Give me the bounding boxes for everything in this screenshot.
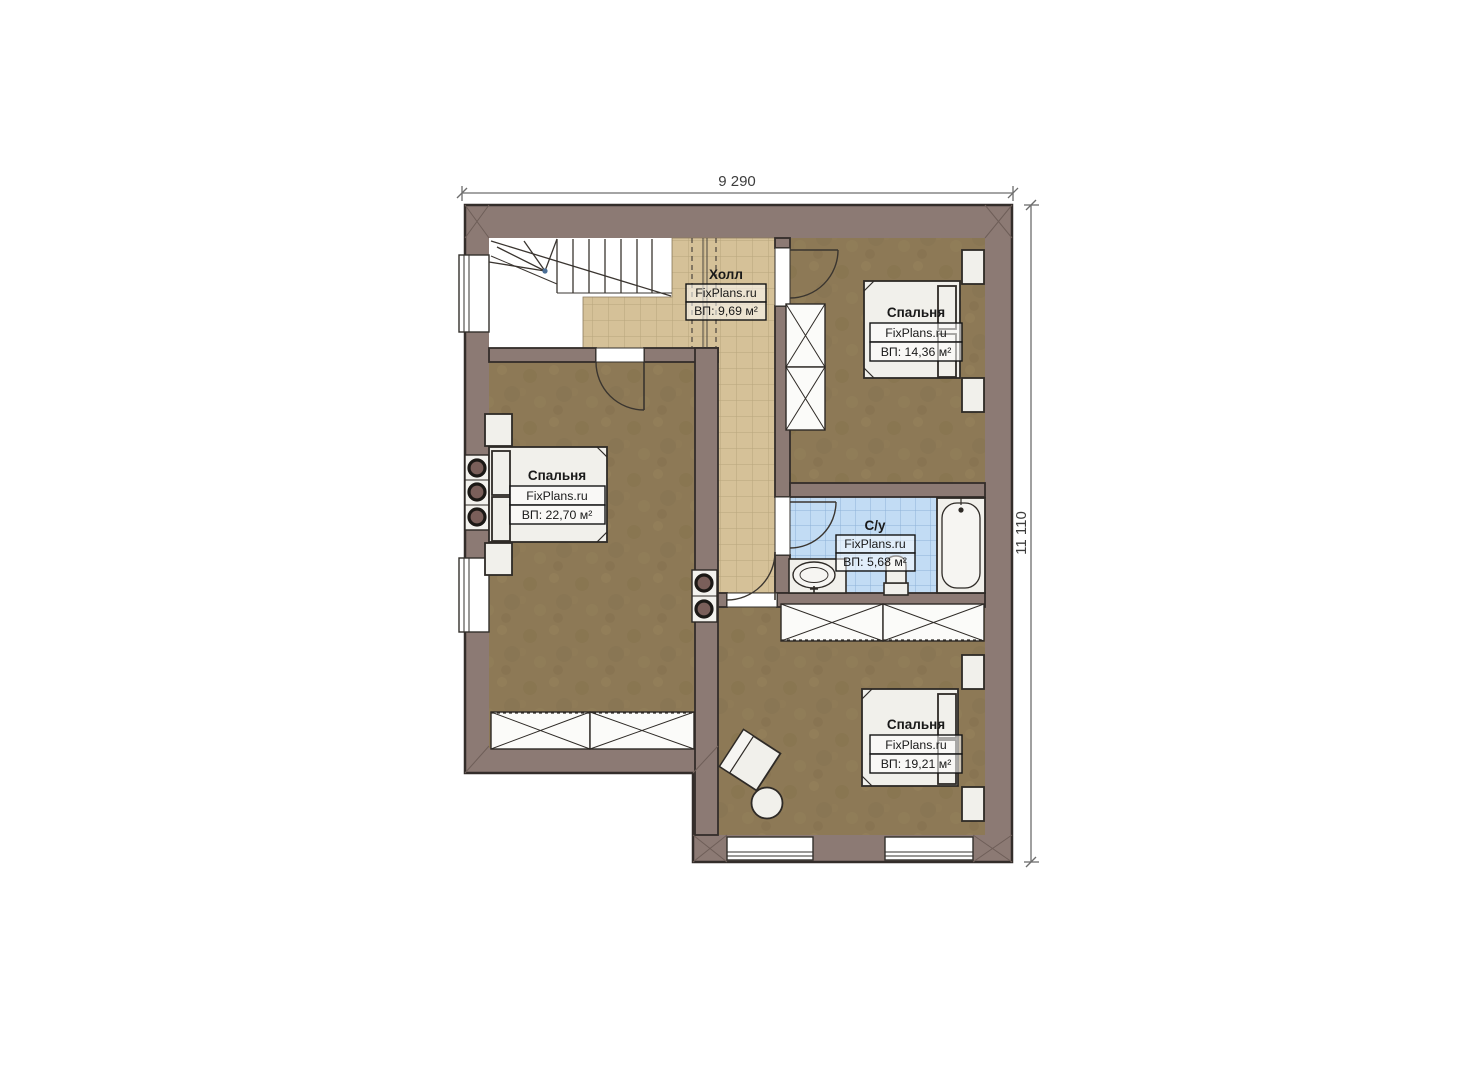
wardrobe-left-bottom xyxy=(491,712,694,749)
wardrobe-below-bathroom xyxy=(781,604,984,641)
flue-blocks-left-wall xyxy=(465,455,489,530)
room-name: Спальня xyxy=(528,468,586,483)
wardrobe-top-right xyxy=(786,304,825,430)
room-watermark: FixPlans.ru xyxy=(695,286,757,300)
dimension-top-label: 9 290 xyxy=(718,173,756,190)
room-area: ВП: 9,69 м² xyxy=(694,304,758,318)
room-watermark: FixPlans.ru xyxy=(885,326,947,340)
room-area: ВП: 19,21 м² xyxy=(881,757,952,771)
stair-newel-dot xyxy=(542,268,547,273)
room-name: Холл xyxy=(709,267,743,282)
room-name: С/у xyxy=(864,518,886,533)
room-name: Спальня xyxy=(887,305,945,320)
room-area: ВП: 14,36 м² xyxy=(881,345,952,359)
window-bottom-right xyxy=(885,837,973,860)
room-area: ВП: 22,70 м² xyxy=(522,508,593,522)
room-watermark: FixPlans.ru xyxy=(844,537,906,551)
bathtub-drain xyxy=(958,507,963,512)
side-table xyxy=(752,788,783,819)
floor-plan-page: 9 290 11 110 xyxy=(0,0,1473,1080)
floor-plan-drawing: 9 290 11 110 xyxy=(0,0,1473,1080)
room-watermark: FixPlans.ru xyxy=(526,489,588,503)
room-area: ВП: 5,68 м² xyxy=(843,555,907,569)
dimension-right-label: 11 110 xyxy=(1013,511,1030,555)
room-watermark: FixPlans.ru xyxy=(885,738,947,752)
window-bottom-left xyxy=(727,837,813,860)
bedroom-left-floor xyxy=(489,362,695,748)
flue-blocks-corridor-wall xyxy=(692,570,717,622)
room-name: Спальня xyxy=(887,717,945,732)
bathtub xyxy=(937,498,985,593)
window-left-upper xyxy=(459,255,489,332)
